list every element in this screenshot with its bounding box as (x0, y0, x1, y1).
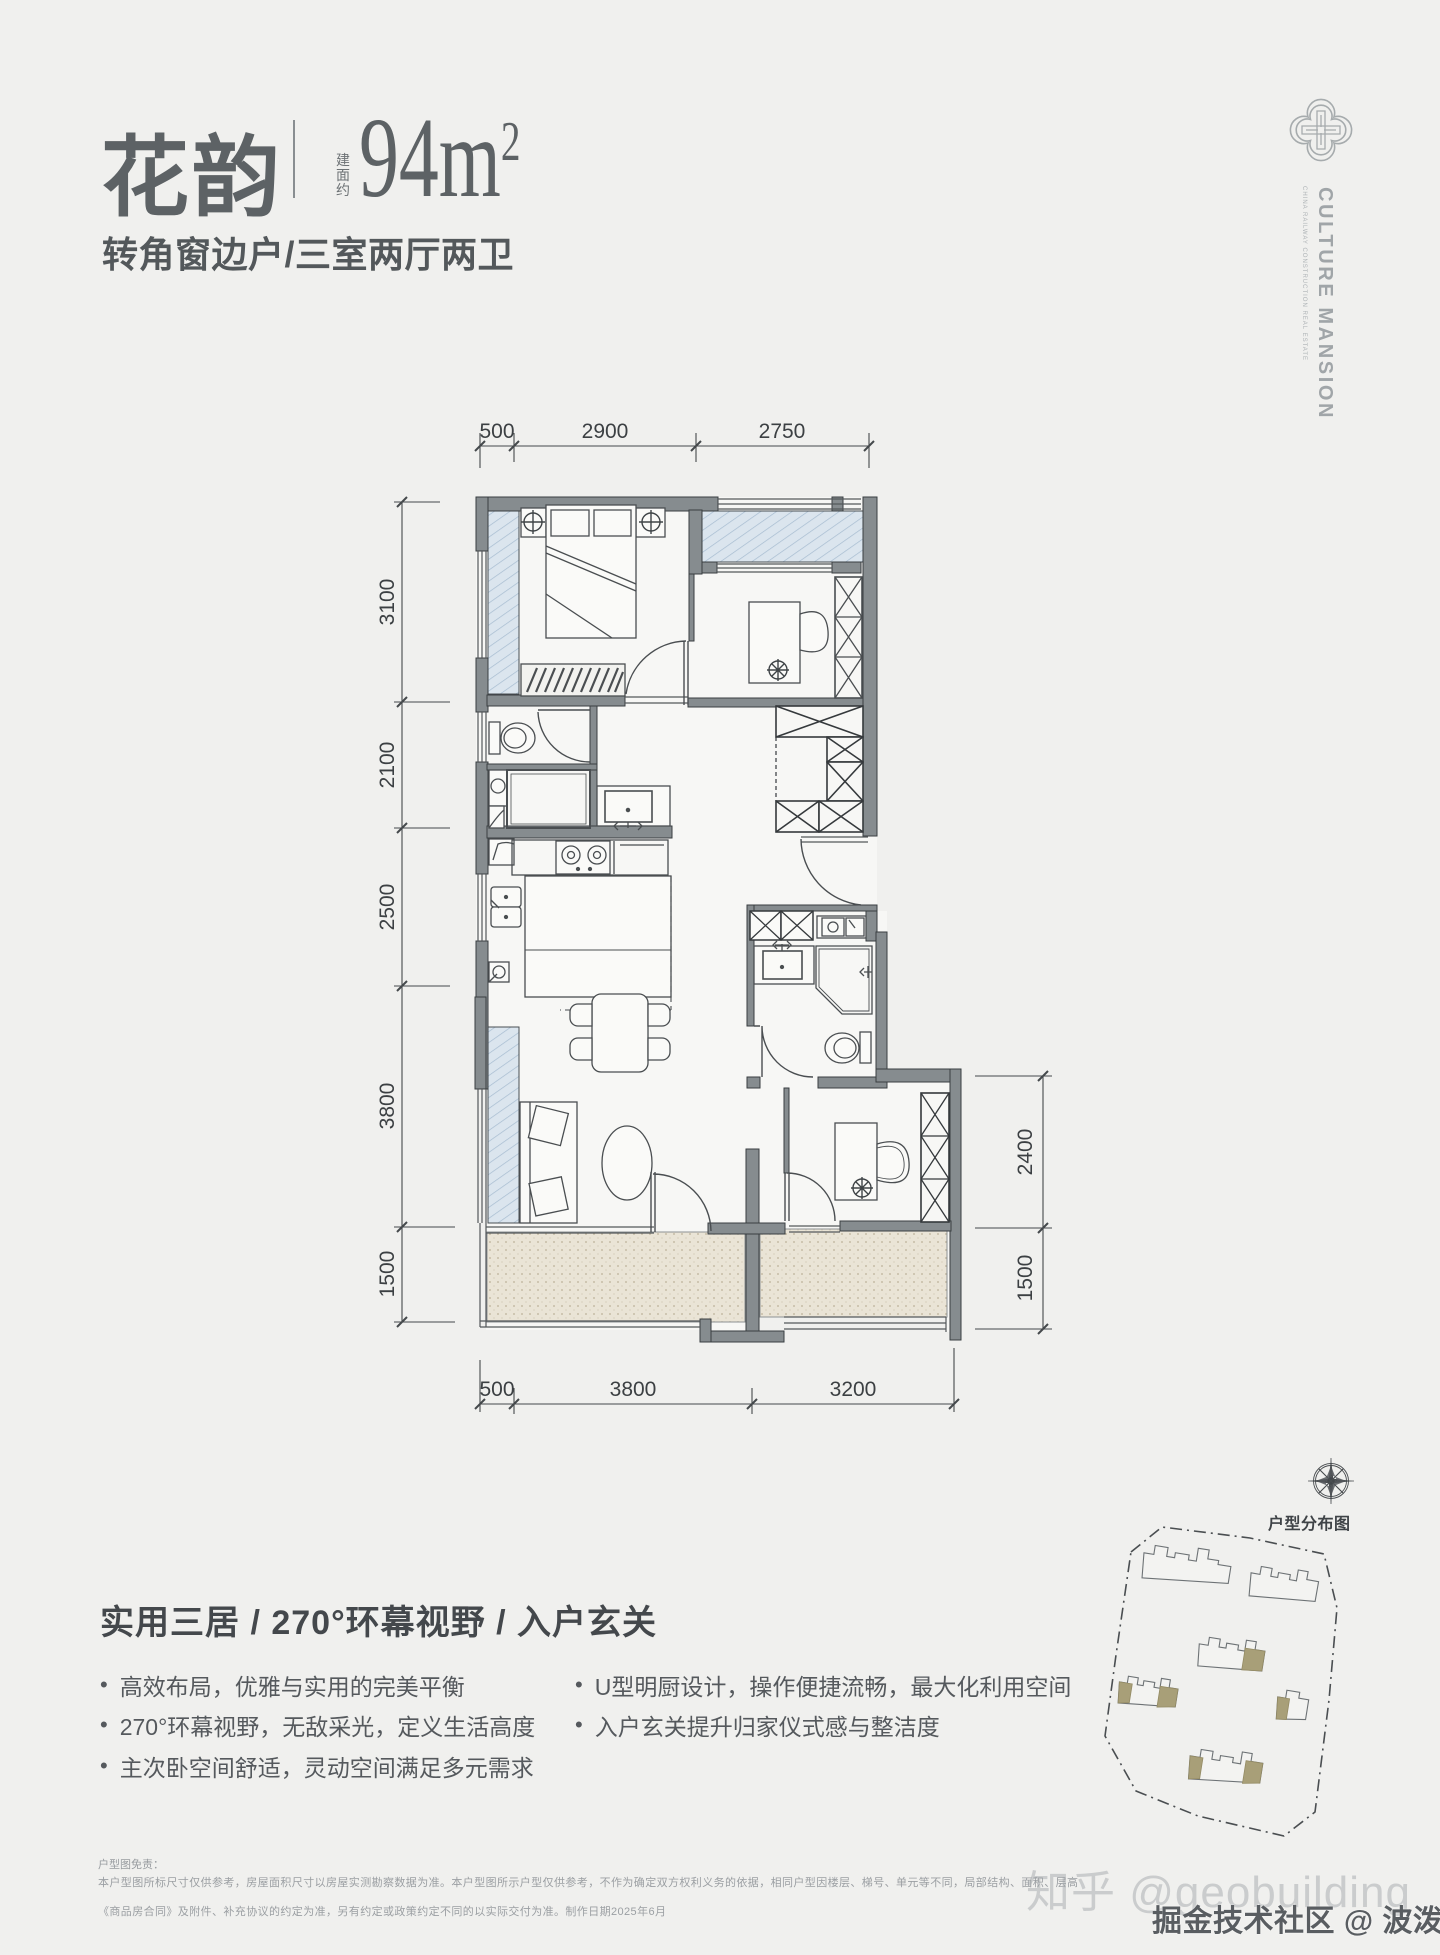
svg-text:3800: 3800 (376, 1083, 399, 1130)
svg-text:2400: 2400 (1014, 1129, 1037, 1176)
svg-text:2500: 2500 (376, 884, 399, 931)
svg-text:2100: 2100 (376, 742, 399, 789)
svg-text:1500: 1500 (1014, 1255, 1037, 1302)
svg-text:2900: 2900 (582, 420, 629, 443)
svg-text:1500: 1500 (376, 1251, 399, 1298)
svg-text:500: 500 (479, 420, 514, 443)
svg-text:3100: 3100 (376, 579, 399, 626)
svg-text:2750: 2750 (759, 420, 806, 443)
svg-text:500: 500 (479, 1378, 514, 1401)
svg-text:3200: 3200 (830, 1378, 877, 1401)
svg-text:3800: 3800 (610, 1378, 657, 1401)
